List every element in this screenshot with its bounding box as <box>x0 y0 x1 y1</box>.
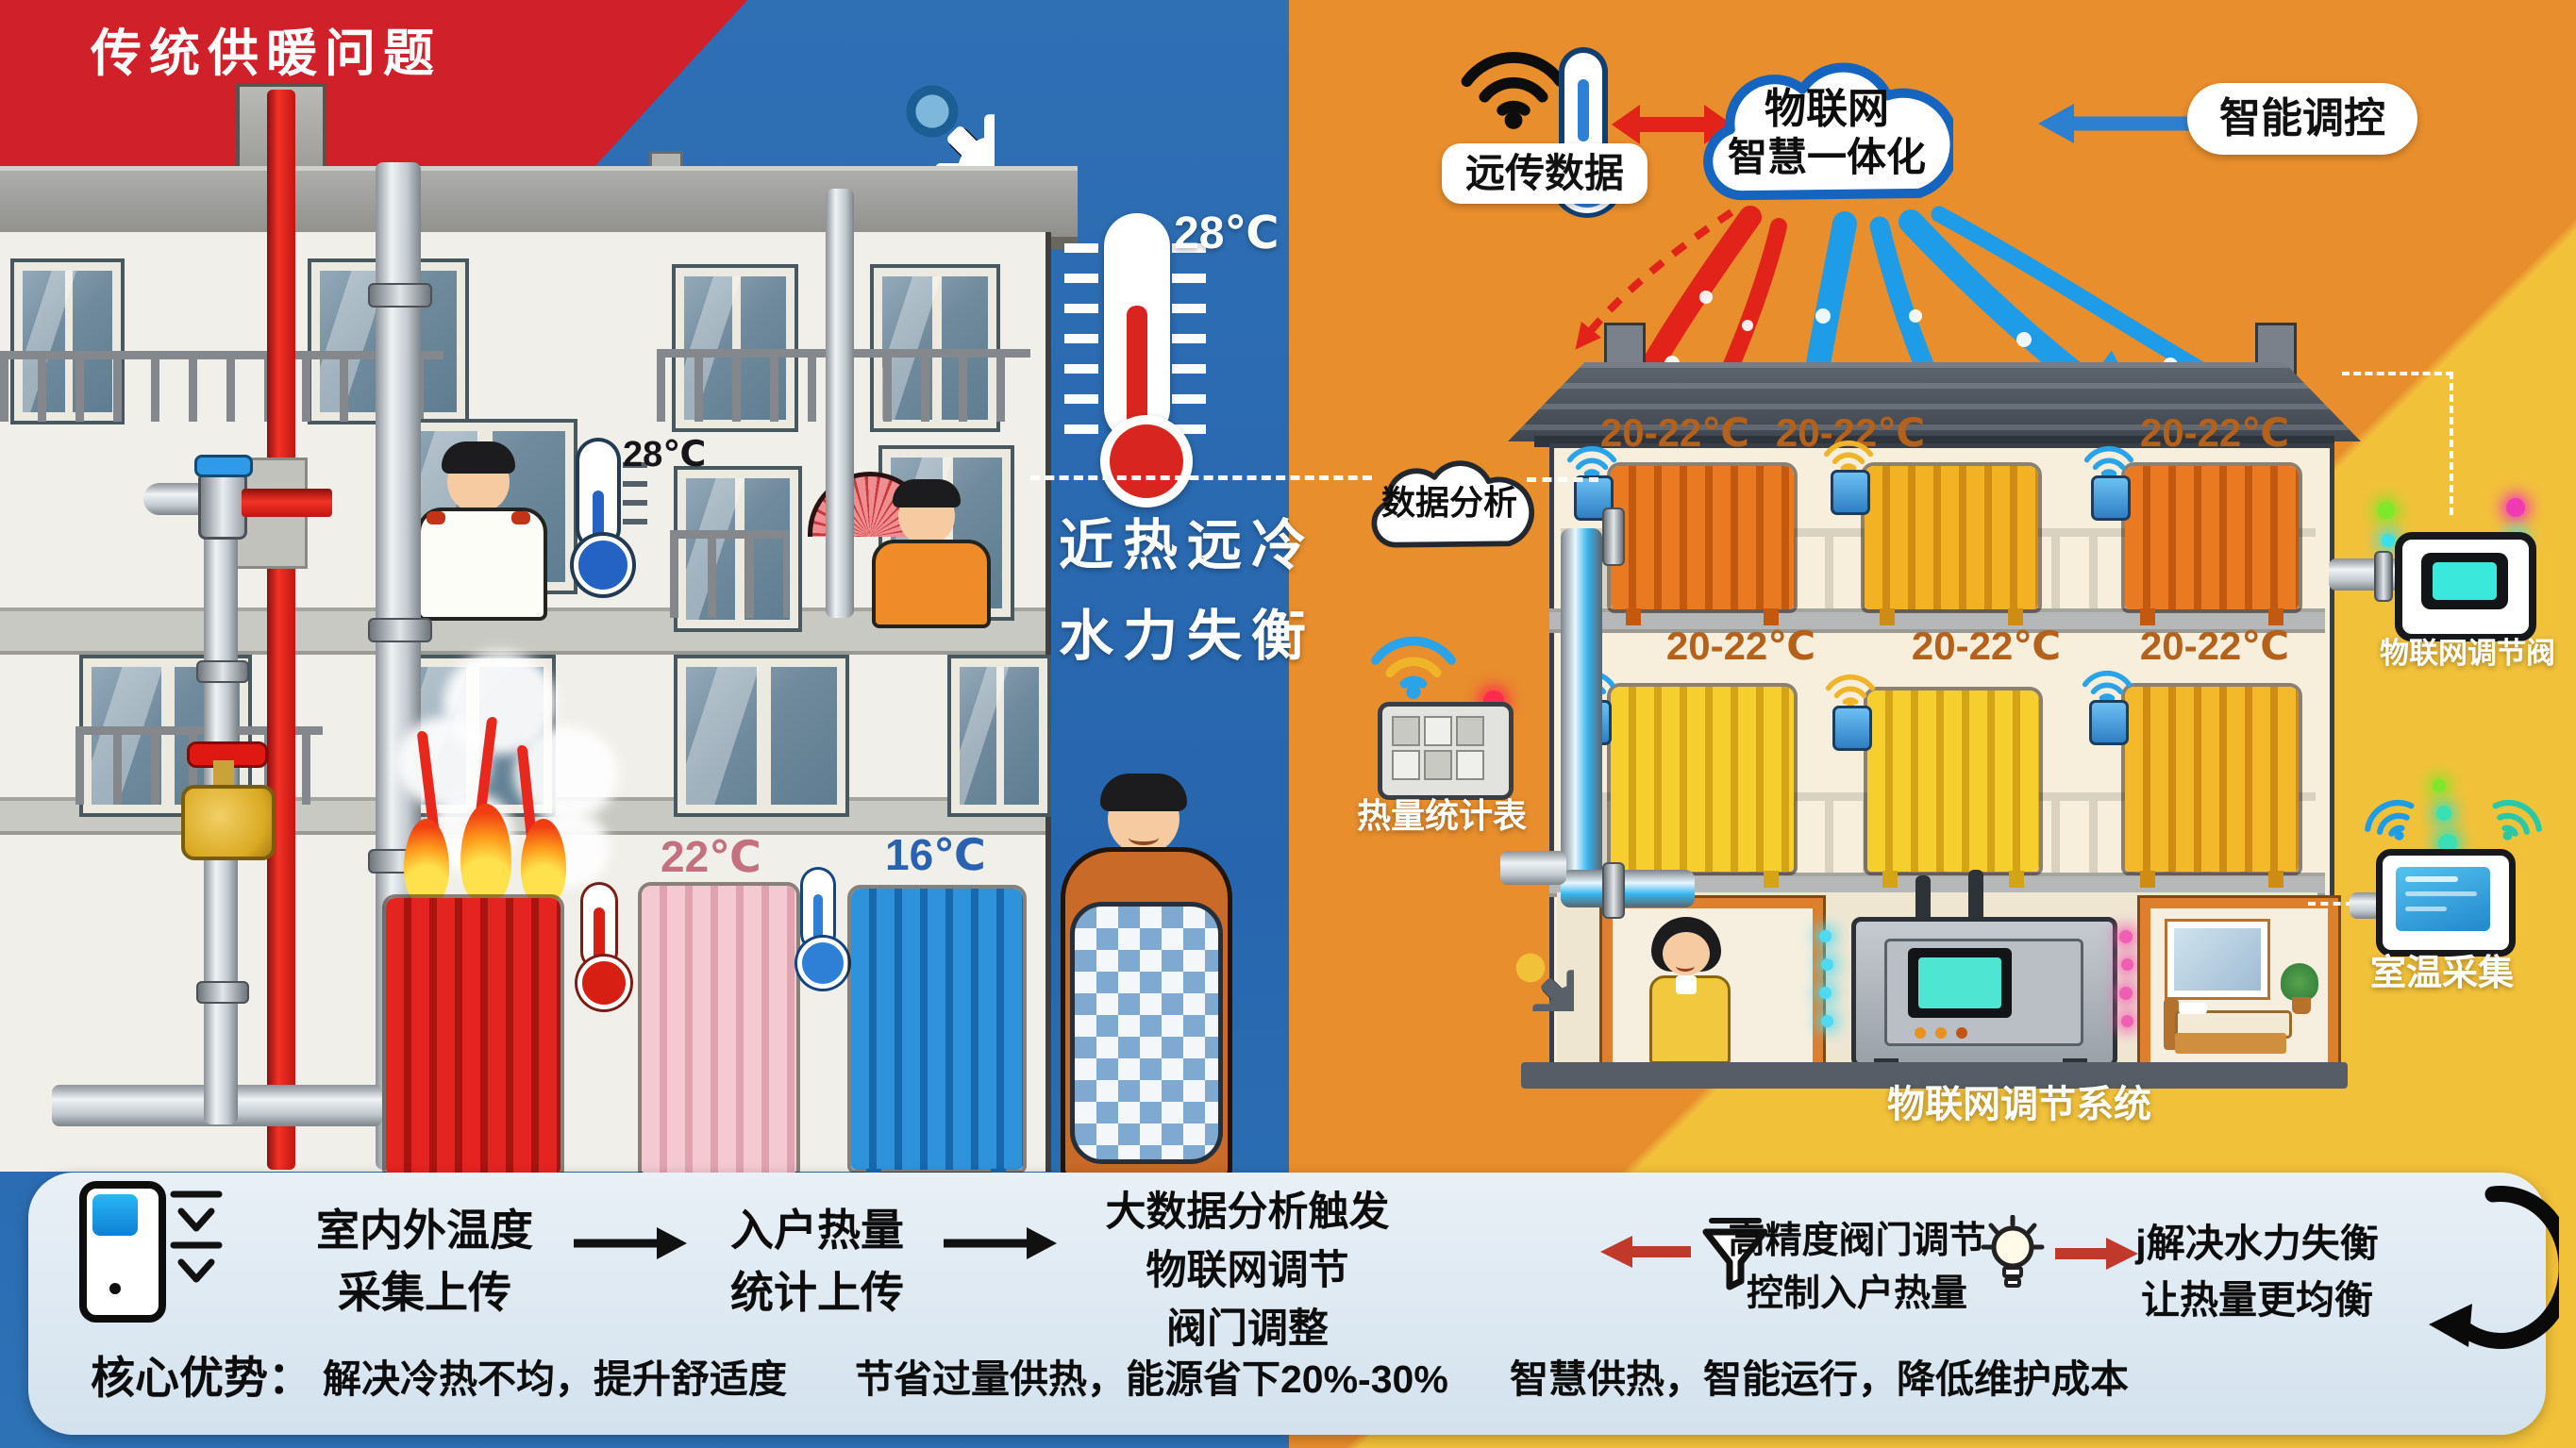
dashed-connector <box>2308 902 2353 906</box>
iot-valve-device <box>2089 700 2129 745</box>
status-led <box>2506 498 2525 517</box>
radiator-smart <box>1864 687 2043 875</box>
heat-meter-device <box>1378 702 1514 800</box>
status-led <box>2433 779 2446 792</box>
dashed-connector <box>1527 477 1598 482</box>
person-hot-resident <box>413 440 545 619</box>
pipe-collar <box>2374 551 2393 602</box>
status-led <box>1821 958 1833 971</box>
flow-step-line: 采集上传 <box>316 1258 533 1321</box>
dashed-connector <box>1030 475 1372 480</box>
status-led <box>2378 502 2395 519</box>
outdoor-temp-label: 28℃ <box>1174 209 1280 258</box>
status-led <box>2121 1015 2133 1027</box>
warm-temp-label: 22℃ <box>661 834 761 881</box>
tablet-label: 室温采集 <box>2367 955 2517 993</box>
pipe-collar <box>196 660 249 683</box>
person-fan-resident <box>870 479 993 621</box>
controller-unit <box>1851 917 2117 1068</box>
infographic-canvas: 28℃ 22℃ <box>0 0 2576 1448</box>
room-bedroom <box>2140 898 2338 1085</box>
flow-arrow-icon <box>938 1223 1061 1264</box>
person-cold-blanket <box>1049 777 1234 1170</box>
controller-pipes <box>1915 875 1931 921</box>
faucet-blue-handle <box>194 455 253 477</box>
lightbulb-icon <box>1980 1215 2046 1298</box>
flow-step-3: 大数据分析触发 物联网调节 阀门调整 <box>1106 1179 1390 1355</box>
status-led <box>2436 806 2451 821</box>
status-led <box>1821 1015 1833 1027</box>
red-branch-pipe <box>242 489 332 517</box>
small-blue-thermometer-icon <box>799 870 846 981</box>
status-led <box>1819 987 1832 999</box>
benefit-item: 节省过量供热，能源省下20%-30% <box>855 1358 1448 1400</box>
faucet-body <box>198 472 247 540</box>
upload-download-icon <box>166 1187 226 1296</box>
blue-pipe-vertical <box>1561 528 1602 907</box>
page-title: 传统供暖问题 <box>91 26 442 81</box>
smart-control-arrow-icon <box>2029 100 2199 147</box>
analysis-label: 数据分析 <box>1374 485 1525 522</box>
system-label: 物联网调节系统 <box>1849 1085 2189 1125</box>
radiator-smart <box>1607 683 1798 875</box>
meter-pipe <box>1500 851 1566 885</box>
brass-valve-body <box>181 785 276 860</box>
flow-step-line: 阀门调整 <box>1106 1296 1390 1355</box>
controller-pipes <box>1968 870 1983 921</box>
radiator-smart <box>1861 462 2042 613</box>
flow-step-line: j解决水力失衡 <box>2135 1211 2378 1268</box>
dashed-connector <box>2342 372 2453 375</box>
flow-step-line: 入户热量 <box>730 1196 904 1258</box>
wifi-icon <box>1458 30 1569 130</box>
wifi-icon <box>1366 619 1461 700</box>
room-temp-label: 20-22℃ <box>2134 411 2295 454</box>
room-temp-label: 20-22℃ <box>1906 624 2066 667</box>
iot-cloud-line1: 物联网 <box>1732 87 1921 132</box>
small-red-thermometer-icon <box>579 885 628 1002</box>
room-temp-tablet <box>2376 849 2516 957</box>
pipe-collar <box>196 981 249 1004</box>
flow-arrow-icon <box>568 1223 691 1264</box>
pipe-collar <box>1602 862 1625 919</box>
flow-step-line: 高精度阀门调节 <box>1728 1211 1985 1264</box>
pipe-collar <box>1602 508 1625 566</box>
flow-step-1: 室内外温度 采集上传 <box>316 1196 533 1321</box>
iot-valve-device <box>2091 475 2131 521</box>
slogan-line-1: 近热远冷 <box>1059 517 1315 576</box>
iot-valve-label: 物联网调节阀 <box>2359 638 2576 669</box>
gear-icon <box>870 49 995 174</box>
red-forward-arrow-icon <box>2048 1232 2146 1275</box>
wifi-icon <box>1823 664 1878 711</box>
window <box>677 658 845 813</box>
indoor-temp-label: 28℃ <box>623 436 706 474</box>
radiator-cold <box>847 885 1027 1173</box>
room-temp-label: 20-22℃ <box>1661 624 1821 667</box>
window <box>951 658 1047 813</box>
benefit-item: 解决冷热不均，提升舒适度 <box>323 1358 787 1400</box>
red-back-arrow-icon <box>1593 1230 1698 1273</box>
flow-step-line: 大数据分析触发 <box>1106 1179 1390 1238</box>
status-led <box>2119 987 2133 1000</box>
smart-control-label: 智能调控 <box>2219 96 2385 141</box>
gear-icon <box>1487 924 1574 1011</box>
iot-cloud-line2: 智慧一体化 <box>1714 136 1940 178</box>
supply-pipe-red-vertical <box>267 90 295 1170</box>
blue-pipe-bottom <box>1561 870 1695 907</box>
flow-step-line: 控制入户热量 <box>1728 1264 1985 1317</box>
balcony-railing <box>670 530 789 618</box>
flow-step-5: j解决水力失衡 让热量更均衡 <box>2135 1211 2378 1324</box>
flow-step-line: 统计上传 <box>730 1258 904 1321</box>
meter-label: 热量统计表 <box>1347 798 1536 835</box>
iot-valve-device <box>1832 706 1872 751</box>
brass-valve-stem <box>213 760 234 787</box>
pipe-collar <box>368 618 432 642</box>
flow-step-line: 室内外温度 <box>316 1196 533 1258</box>
smart-control-badge: 智能调控 <box>2187 83 2417 155</box>
flow-step-4: 高精度阀门调节 控制入户热量 <box>1728 1211 1985 1317</box>
benefit-item: 智慧供热，智能运行，降低维护成本 <box>1510 1358 2129 1400</box>
flow-step-line: 物联网调节 <box>1106 1238 1390 1296</box>
supply-pipe-silver <box>826 189 854 618</box>
slogan-line-2: 水力失衡 <box>1059 607 1315 667</box>
iot-regulating-valve-device <box>2395 532 2536 641</box>
pipe-collar <box>368 283 432 308</box>
status-led <box>2121 958 2133 971</box>
radiator-smart <box>2121 462 2302 613</box>
radiator-smart <box>2121 683 2302 875</box>
status-led <box>2119 930 2133 943</box>
radiator-overheated <box>382 894 564 1177</box>
status-led <box>1819 930 1832 942</box>
phone-icon <box>79 1181 166 1323</box>
dashed-connector <box>2450 372 2453 515</box>
flow-step-line: 让热量更均衡 <box>2135 1268 2378 1324</box>
iot-valve-device <box>1831 470 1870 515</box>
radiator-warm <box>638 882 800 1177</box>
cold-temp-label: 16℃ <box>885 832 986 879</box>
benefits-title: 核心优势： <box>91 1355 312 1403</box>
person-woman <box>1644 917 1738 1060</box>
room-temp-label: 20-22℃ <box>2134 624 2295 667</box>
status-led <box>2382 534 2395 547</box>
flow-step-2: 入户热量 统计上传 <box>730 1196 904 1321</box>
loop-arrow-icon <box>2417 1181 2559 1355</box>
